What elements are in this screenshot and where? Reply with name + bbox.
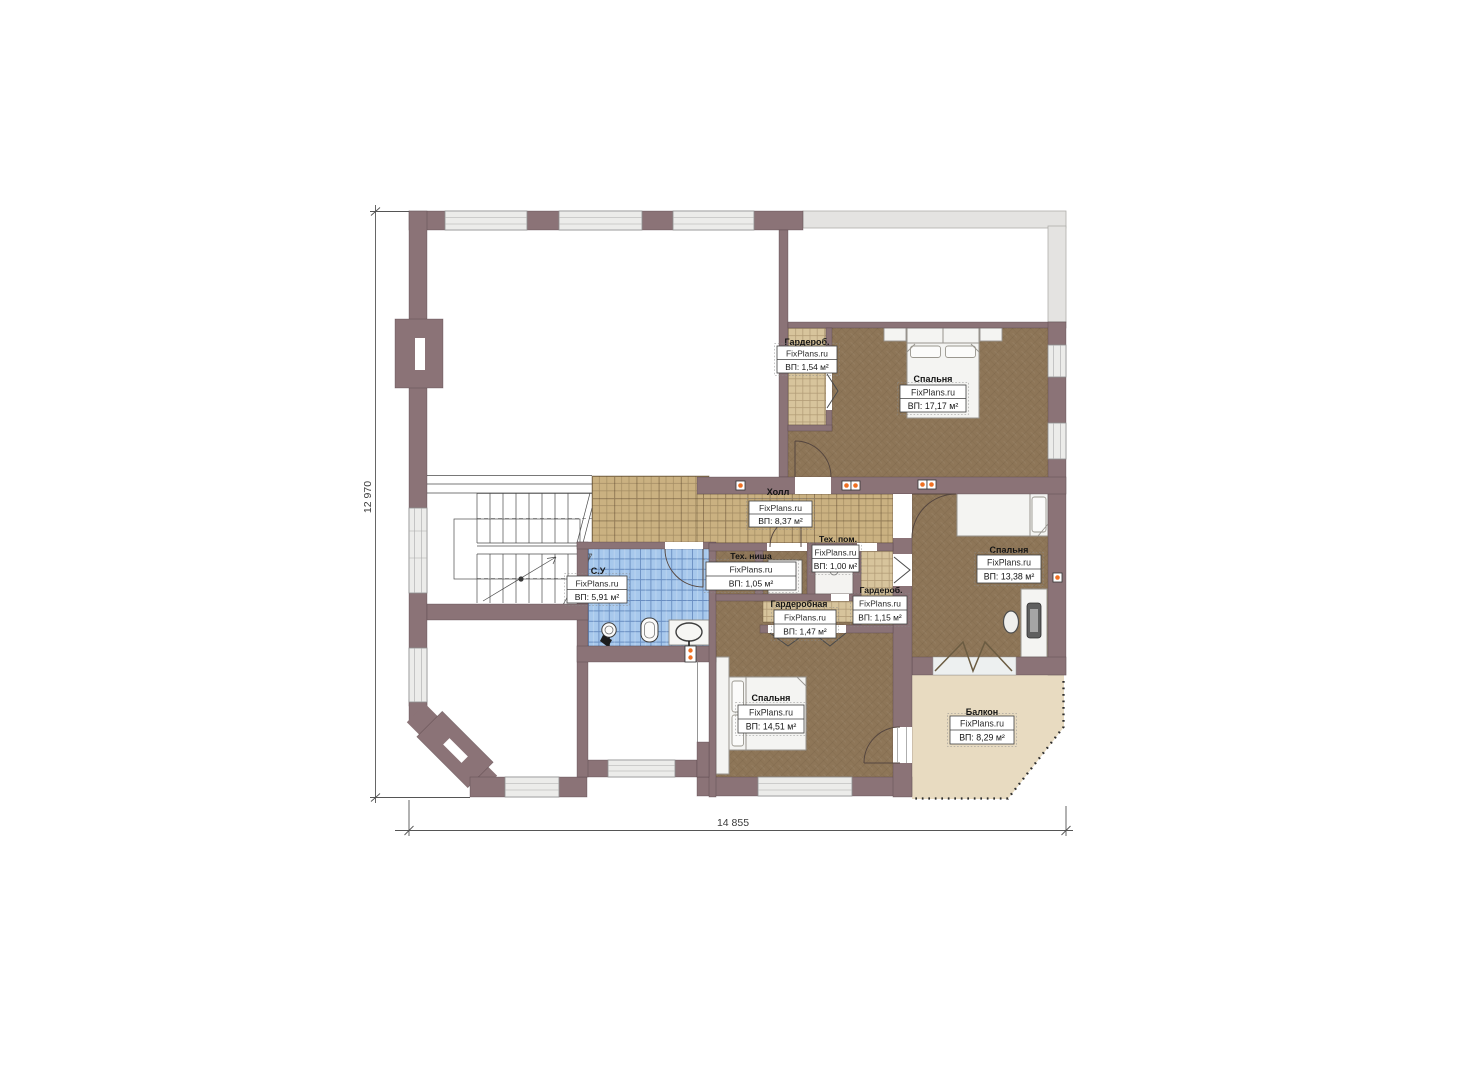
svg-text:ВП: 1,00 м²: ВП: 1,00 м² <box>814 561 858 571</box>
svg-text:С.У: С.У <box>591 566 606 576</box>
svg-text:ВП: 14,51 м²: ВП: 14,51 м² <box>746 722 797 732</box>
svg-text:FixPlans.ru: FixPlans.ru <box>859 599 901 609</box>
svg-text:FixPlans.ru: FixPlans.ru <box>911 388 955 398</box>
svg-text:FixPlans.ru: FixPlans.ru <box>749 708 793 718</box>
svg-text:FixPlans.ru: FixPlans.ru <box>576 579 619 589</box>
svg-text:FixPlans.ru: FixPlans.ru <box>730 565 773 575</box>
svg-text:FixPlans.ru: FixPlans.ru <box>960 719 1004 729</box>
svg-text:FixPlans.ru: FixPlans.ru <box>987 558 1031 568</box>
svg-text:ВП: 17,17 м²: ВП: 17,17 м² <box>908 401 959 411</box>
svg-text:ВП: 8,37 м²: ВП: 8,37 м² <box>758 516 803 526</box>
svg-text:FixPlans.ru: FixPlans.ru <box>759 503 802 513</box>
svg-text:ВП: 1,05 м²: ВП: 1,05 м² <box>729 579 774 589</box>
svg-text:Балкон: Балкон <box>966 707 999 717</box>
svg-text:Гардероб.: Гардероб. <box>784 337 829 347</box>
svg-text:FixPlans.ru: FixPlans.ru <box>784 613 826 623</box>
svg-text:ВП: 1,47 м²: ВП: 1,47 м² <box>783 627 827 637</box>
svg-text:ВП: 1,54 м²: ВП: 1,54 м² <box>785 362 829 372</box>
svg-text:Спальня: Спальня <box>752 693 791 703</box>
svg-text:ВП: 8,29 м²: ВП: 8,29 м² <box>959 733 1005 743</box>
svg-text:ВП: 5,91 м²: ВП: 5,91 м² <box>575 592 620 602</box>
svg-text:Холл: Холл <box>767 487 790 497</box>
svg-text:FixPlans.ru: FixPlans.ru <box>786 349 828 359</box>
svg-text:Спальня: Спальня <box>990 545 1029 555</box>
svg-text:14 855: 14 855 <box>717 817 749 829</box>
svg-text:ВП: 13,38 м²: ВП: 13,38 м² <box>984 572 1035 582</box>
svg-text:12 970: 12 970 <box>362 481 374 513</box>
svg-text:ВП: 1,15 м²: ВП: 1,15 м² <box>858 613 902 623</box>
svg-text:FixPlans.ru: FixPlans.ru <box>815 548 857 558</box>
